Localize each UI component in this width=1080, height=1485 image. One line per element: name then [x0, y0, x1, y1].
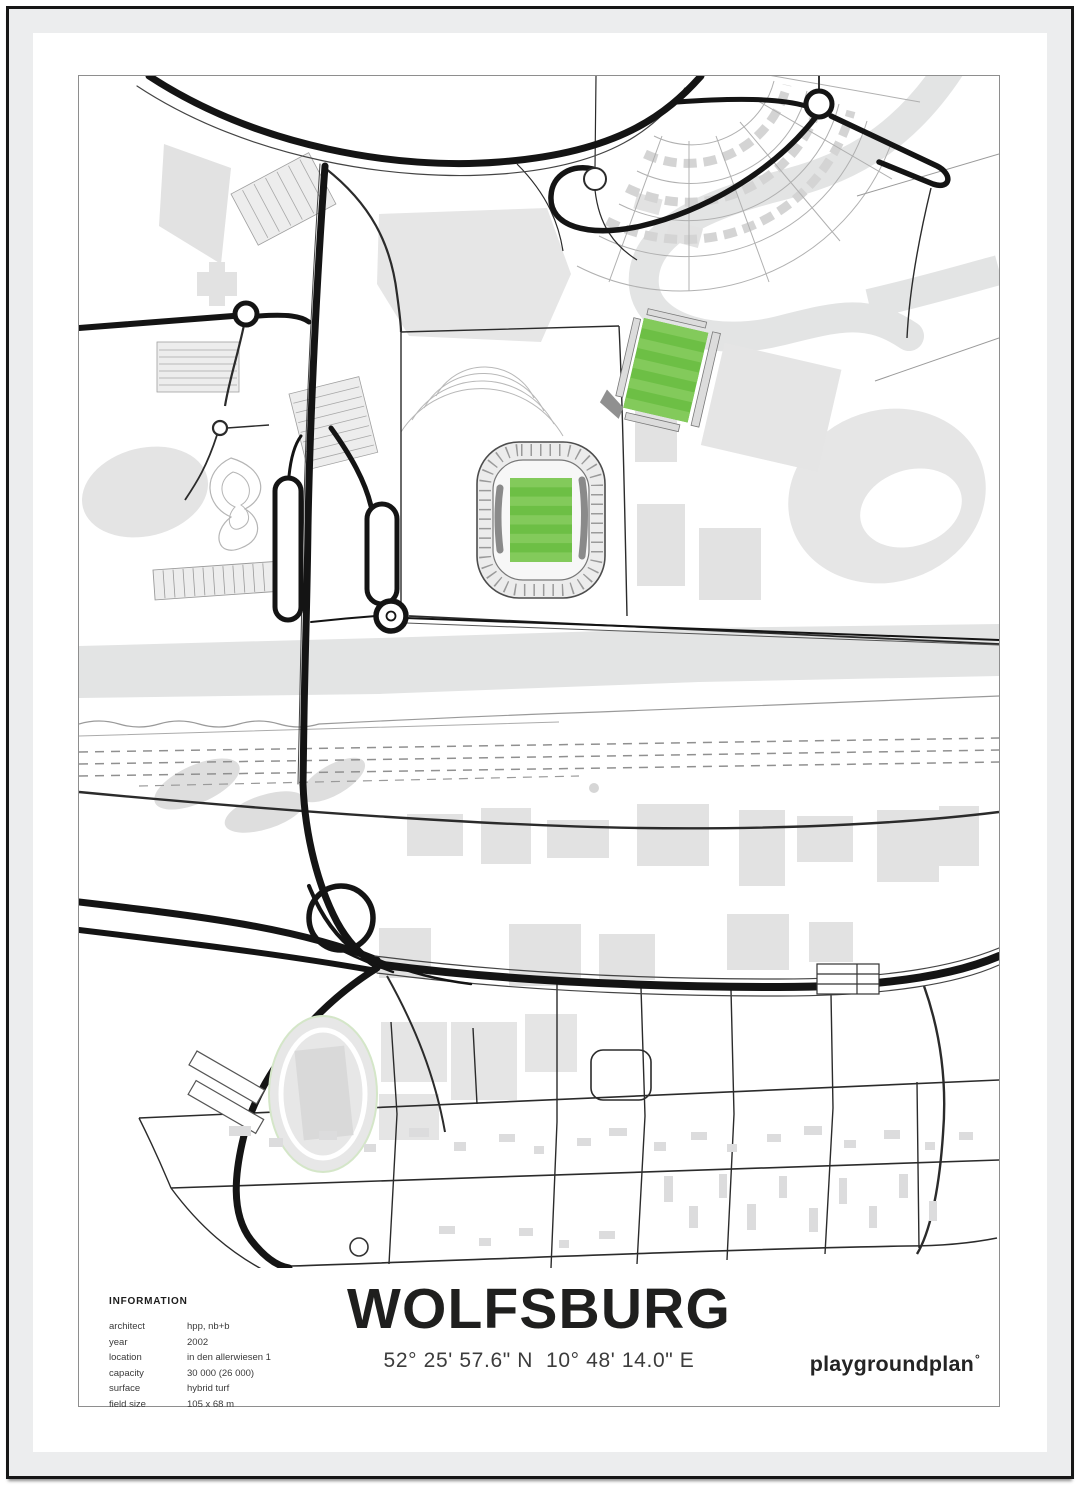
main-stadium: [477, 442, 605, 598]
poster-footer: INFORMATION architecthpp, nb+b year2002 …: [79, 1268, 999, 1404]
brand-name: playgroundplan: [810, 1352, 974, 1376]
brand-logo: playgroundplan°: [810, 1352, 979, 1377]
forecourt-steps: [401, 367, 563, 436]
slanted-halls: [176, 1051, 277, 1133]
poster: INFORMATION architecthpp, nb+b year2002 …: [0, 0, 1080, 1485]
info-row: surfacehybrid turf: [109, 1381, 271, 1397]
stadium-pitch: [510, 478, 572, 562]
athletics-track: [269, 1016, 377, 1172]
map-art-box: INFORMATION architecthpp, nb+b year2002 …: [78, 75, 1000, 1407]
city-title: WOLFSBURG: [79, 1280, 999, 1340]
brand-degree-mark: °: [975, 1352, 980, 1366]
info-row: field size105 x 68 m: [109, 1397, 271, 1413]
map-illustration: [79, 76, 999, 1268]
poster-mat-inner: INFORMATION architecthpp, nb+b year2002 …: [33, 33, 1047, 1452]
grid-building: [817, 964, 879, 994]
